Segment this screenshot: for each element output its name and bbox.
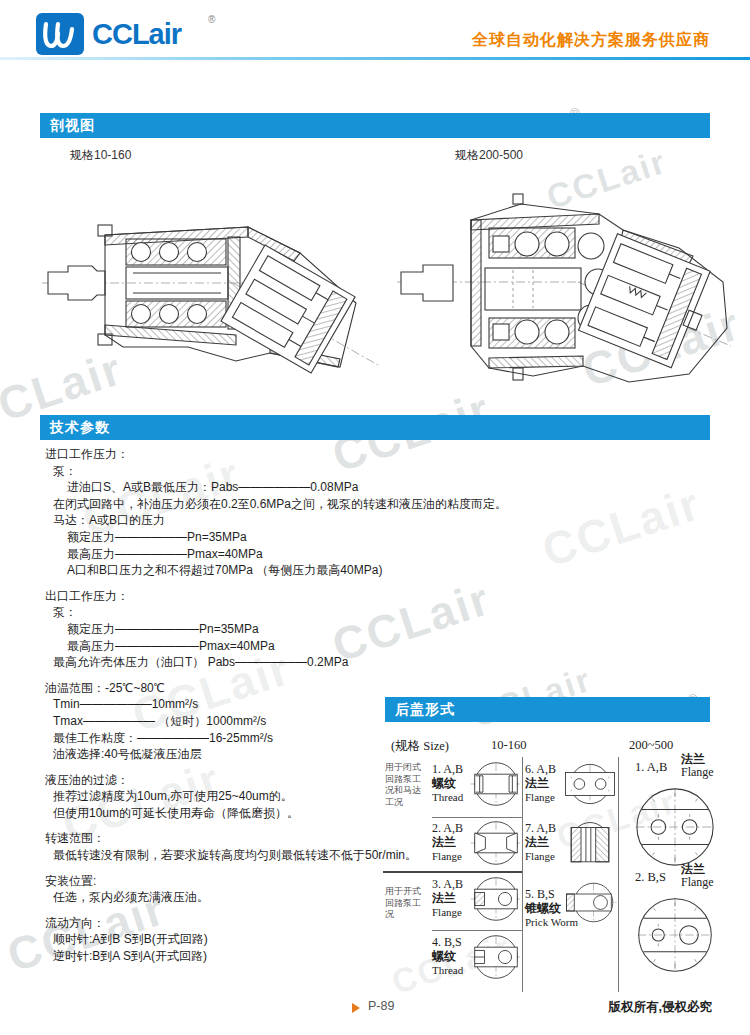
copyright-notice: 版权所有,侵权必究 <box>609 999 712 1016</box>
cell-r1-label: 法兰 Flange <box>681 753 714 779</box>
table-vline <box>618 757 619 992</box>
port-drawing-flange-block-icon <box>563 819 617 871</box>
table-header-10-160: 10-160 <box>491 738 526 753</box>
tech-line: 油温范围：-25℃~80℃ <box>45 680 507 697</box>
section-title-rear-cover: 后盖形式 <box>385 697 710 722</box>
cell-r2-num: 2. B,S <box>635 870 666 885</box>
rear-cover-table: (规格 Size) 10-160 200~500 用于闭式回路泵工况和马达工况 … <box>383 735 718 1010</box>
spec-label-200-500: 规格200-500 <box>455 147 523 164</box>
spec-label-10-160: 规格10-160 <box>70 147 131 164</box>
catalog-page: CCLair CCLair CCLair CCLair CCLair CCLai… <box>0 0 750 1035</box>
tech-line: 泵： <box>45 463 507 480</box>
tech-line: 最高压力———————Pmax=40MPa <box>45 638 507 655</box>
header-divider <box>0 57 750 60</box>
tech-line: 最高压力——————Pmax=40MPa <box>45 546 507 563</box>
port-drawing-big-flange2-icon <box>635 895 715 979</box>
group-label-open-circuit: 用于开式回路泵工况 <box>385 886 427 921</box>
tech-line: 额定压力———————Pn=35MPa <box>45 621 507 638</box>
tech-line: 在闭式回路中，补油压力必须在0.2至0.6MPa之间，视泵的转速和液压油的粘度而… <box>45 496 507 513</box>
port-drawing-thread-icon <box>469 760 523 812</box>
table-hline <box>432 817 522 818</box>
tech-line: 马达：A或B口的压力 <box>45 512 507 529</box>
page-marker-icon <box>352 1003 360 1013</box>
tech-line: 进油口S、A或B最低压力：Pabs——————0.08MPa <box>45 479 507 496</box>
port-drawing-prickworm-icon <box>565 880 619 929</box>
table-header-200-500: 200~500 <box>629 738 673 753</box>
port-drawing-big-flange-icon <box>633 785 717 873</box>
tech-line: 出口工作压力： <box>45 588 507 605</box>
cell-en: Flange <box>681 876 714 889</box>
section-title-tech-params: 技术参数 <box>40 415 710 440</box>
tech-line: 额定压力——————Pn=35MPa <box>45 529 507 546</box>
group-label-closed-circuit: 用于闭式回路泵工况和马达工况 <box>385 762 427 808</box>
pump-cross-section-200-500 <box>393 178 738 402</box>
section-title-cutaway: 剖视图 <box>40 113 710 138</box>
company-tagline: 全球自动化解决方案服务供应商 <box>472 30 710 51</box>
logo-wordmark: CCLair <box>92 18 181 51</box>
tech-line: 泵： <box>45 604 507 621</box>
table-header-size: (规格 Size) <box>391 738 449 755</box>
tech-line: A口和B口压力之和不得超过70MPa （每侧压力最高40MPa) <box>45 562 507 579</box>
port-drawing-flange-hole-icon <box>469 875 523 927</box>
port-drawing-thread-hole-icon <box>469 933 523 985</box>
port-drawing-flange-icon <box>469 819 523 871</box>
logo-registered-mark: ® <box>208 14 215 25</box>
cell-r1-num: 1. A,B <box>635 760 667 775</box>
page-number: P-89 <box>368 999 394 1013</box>
table-group-separator <box>383 871 522 873</box>
port-drawing-flange-2holes-icon <box>563 760 617 812</box>
cclair-logo-icon <box>36 13 84 55</box>
watermark: CCLair <box>536 476 708 578</box>
pump-cross-section-10-160 <box>38 175 383 399</box>
tech-line: 最高允许壳体压力（油口T） Pabs——————0.2MPa <box>45 654 507 671</box>
cell-en: Flange <box>681 766 714 779</box>
table-hline <box>432 930 522 931</box>
cell-r2-label: 法兰 Flange <box>681 863 714 889</box>
tech-line: 进口工作压力： <box>45 446 507 463</box>
